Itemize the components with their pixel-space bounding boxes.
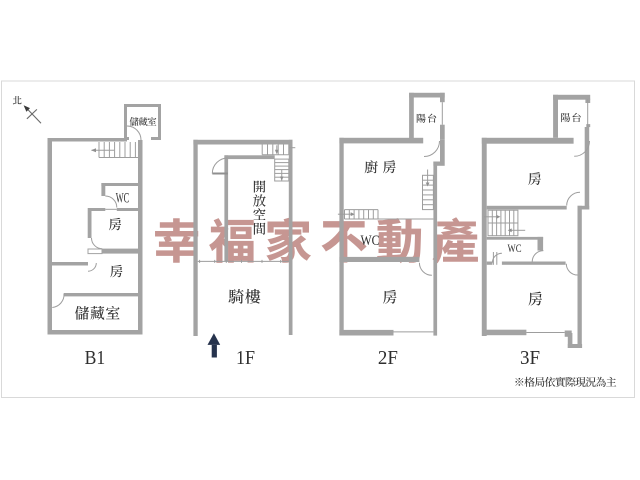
svg-text:B1: B1 — [85, 347, 106, 369]
svg-text:WC: WC — [508, 243, 522, 255]
svg-text:3F: 3F — [520, 347, 540, 369]
svg-text:WC: WC — [116, 190, 130, 206]
svg-text:2F: 2F — [378, 347, 398, 369]
svg-text:1F: 1F — [236, 347, 255, 369]
svg-text:WC: WC — [361, 233, 380, 249]
